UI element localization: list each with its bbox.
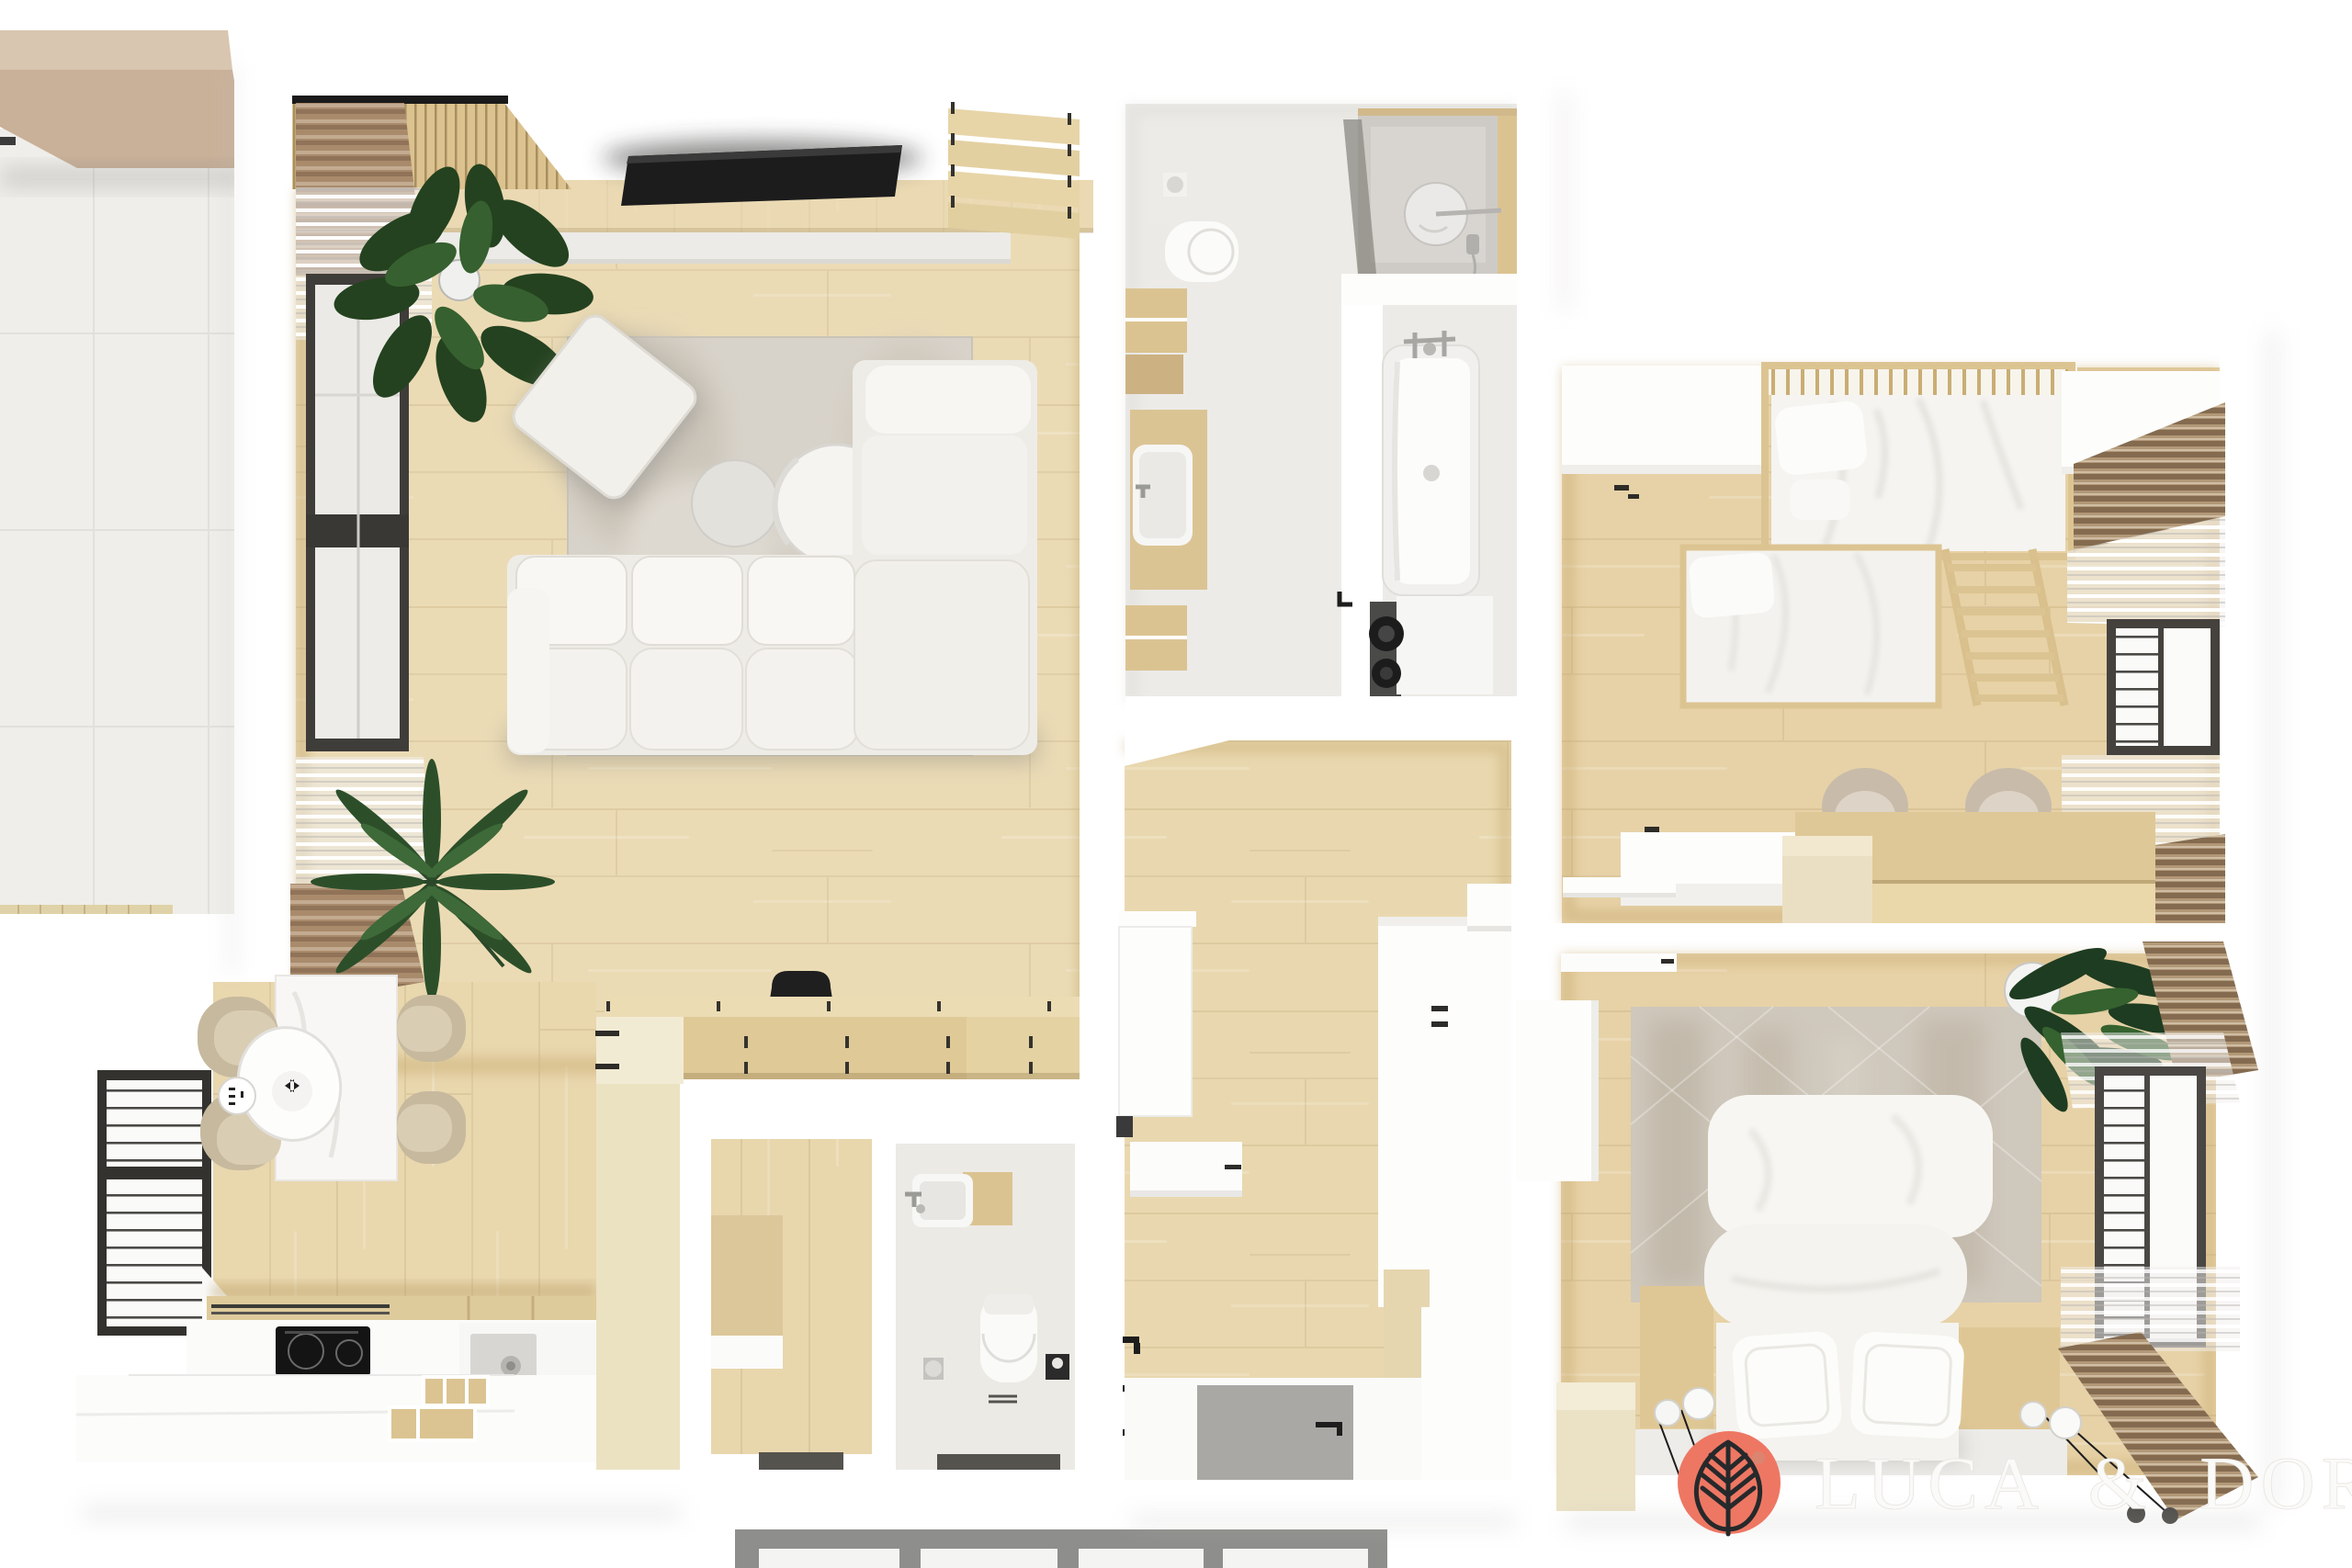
svg-text:LUCA & DORE: LUCA & DORE: [1815, 1441, 2352, 1525]
